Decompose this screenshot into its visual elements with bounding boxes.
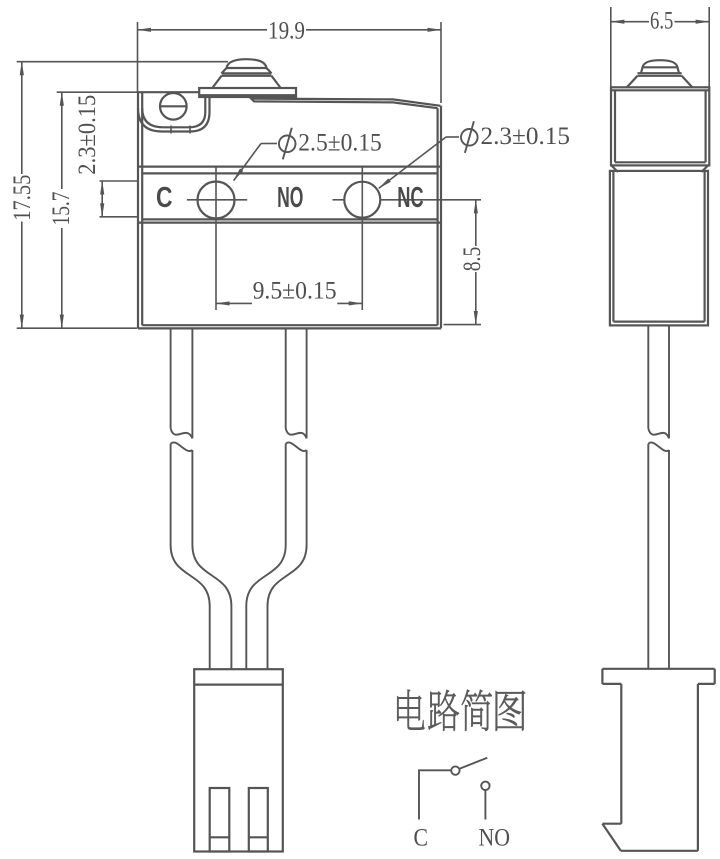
svg-text:15.7: 15.7	[48, 192, 75, 226]
svg-text:8.5: 8.5	[459, 247, 486, 272]
svg-text:C: C	[413, 825, 428, 852]
svg-text:9.5±0.15: 9.5±0.15	[253, 278, 337, 305]
svg-text:NC: NC	[397, 182, 423, 214]
svg-text:C: C	[156, 182, 173, 214]
svg-text:17.55: 17.55	[9, 175, 36, 221]
svg-text:19.9: 19.9	[268, 18, 305, 45]
svg-text:2.3±0.15: 2.3±0.15	[74, 95, 101, 175]
svg-text:NO: NO	[478, 825, 510, 852]
svg-text:NO: NO	[277, 182, 303, 214]
svg-text:6.5: 6.5	[650, 8, 673, 35]
svg-text:2.3±0.15: 2.3±0.15	[481, 123, 571, 150]
svg-text:2.5±0.15: 2.5±0.15	[298, 129, 382, 156]
